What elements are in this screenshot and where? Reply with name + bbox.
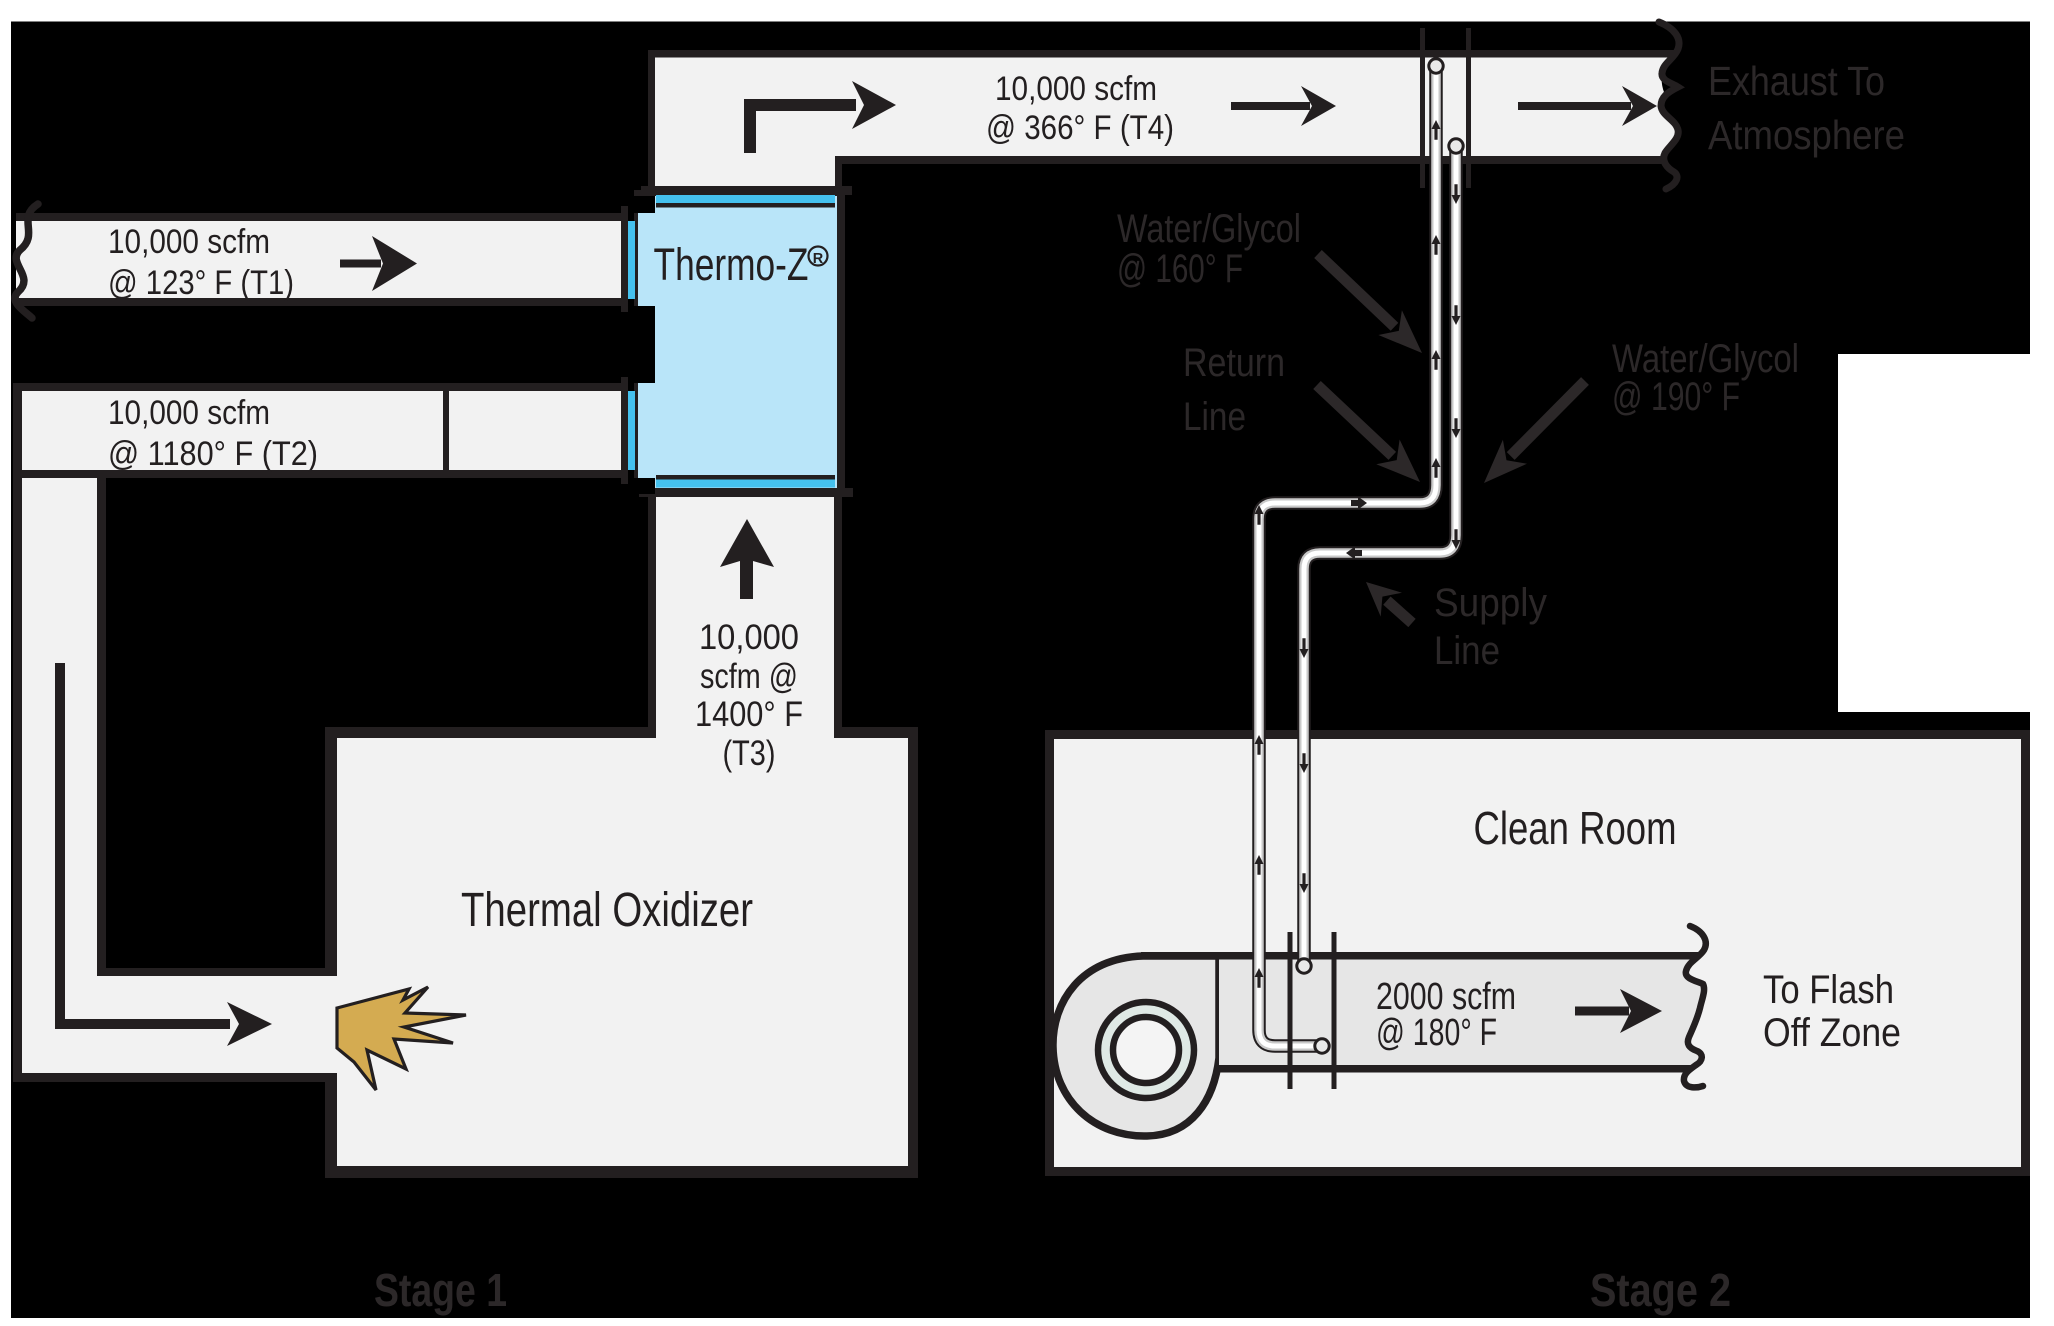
svg-text:@ 180° F: @ 180° F: [1376, 1012, 1497, 1054]
svg-text:Return: Return: [1183, 341, 1285, 385]
svg-text:@ 190° F: @ 190° F: [1612, 375, 1740, 419]
svg-text:Line: Line: [1183, 395, 1246, 439]
svg-text:@ 1180° F (T2): @ 1180° F (T2): [108, 435, 318, 473]
svg-text:Exhaust To: Exhaust To: [1708, 58, 1885, 104]
svg-text:Thermal Oxidizer: Thermal Oxidizer: [461, 884, 753, 937]
svg-text:Line: Line: [1434, 629, 1500, 673]
svg-text:10,000: 10,000: [699, 618, 799, 657]
svg-text:10,000 scfm: 10,000 scfm: [108, 223, 270, 261]
svg-text:Atmosphere: Atmosphere: [1708, 112, 1905, 158]
svg-text:Off Zone: Off Zone: [1763, 1011, 1901, 1055]
svg-text:R: R: [813, 251, 824, 267]
svg-text:@ 123° F (T1): @ 123° F (T1): [108, 264, 294, 302]
svg-text:1400° F: 1400° F: [695, 695, 803, 734]
svg-text:Supply: Supply: [1434, 581, 1547, 625]
svg-text:Water/Glycol: Water/Glycol: [1117, 207, 1301, 251]
svg-text:@ 366° F (T4): @ 366° F (T4): [986, 109, 1174, 147]
svg-text:Clean Room: Clean Room: [1474, 802, 1677, 854]
svg-text:To Flash: To Flash: [1763, 968, 1894, 1012]
svg-text:scfm @: scfm @: [700, 657, 798, 696]
svg-text:(T3): (T3): [723, 734, 776, 773]
svg-text:10,000 scfm: 10,000 scfm: [108, 394, 270, 432]
svg-text:@ 160° F: @ 160° F: [1117, 247, 1243, 291]
svg-text:Stage 1: Stage 1: [374, 1264, 507, 1316]
svg-text:10,000 scfm: 10,000 scfm: [995, 70, 1157, 108]
svg-text:Thermo-Z: Thermo-Z: [654, 239, 809, 290]
svg-text:Stage 2: Stage 2: [1590, 1264, 1731, 1316]
